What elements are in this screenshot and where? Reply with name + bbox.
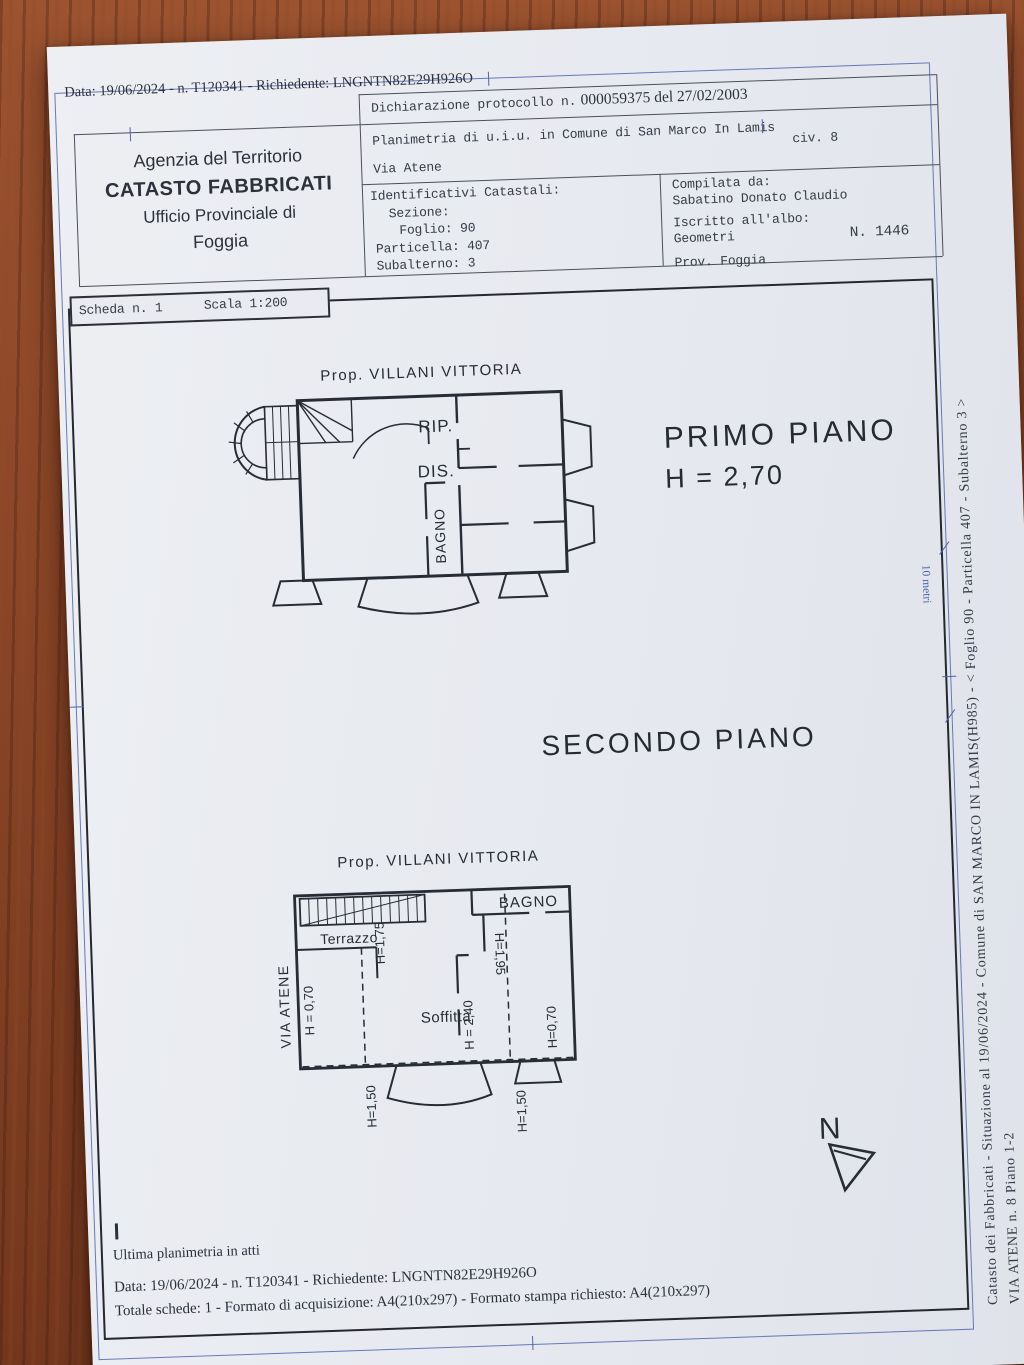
office-block: Agenzia del Territorio CATASTO FABBRICAT… [74, 128, 365, 296]
cadastral-document-sheet: 10 metri Data: 19/06/2024 - n. T120341 -… [47, 14, 1024, 1365]
scheda-label: Scheda n. 1 [79, 300, 163, 318]
albo-number: N. 1446 [849, 223, 909, 241]
scala-label: Scala 1:200 [204, 295, 288, 313]
civ-number: civ. 8 [792, 130, 838, 147]
compilata-cell: Compilata da: Sabatino Donato Claudio Is… [672, 171, 850, 271]
identificativi-cell: Identificativi Catastali: Sezione: Fogli… [370, 181, 563, 275]
photo-wooden-desk: 10 metri Data: 19/06/2024 - n. T120341 -… [0, 0, 1024, 1365]
scale-bar-label: 10 metri [919, 565, 932, 604]
drawing-frame [68, 278, 969, 1340]
frame-tick [488, 72, 490, 86]
frame-tick [942, 676, 956, 678]
street-line: Via Atene [373, 159, 442, 176]
